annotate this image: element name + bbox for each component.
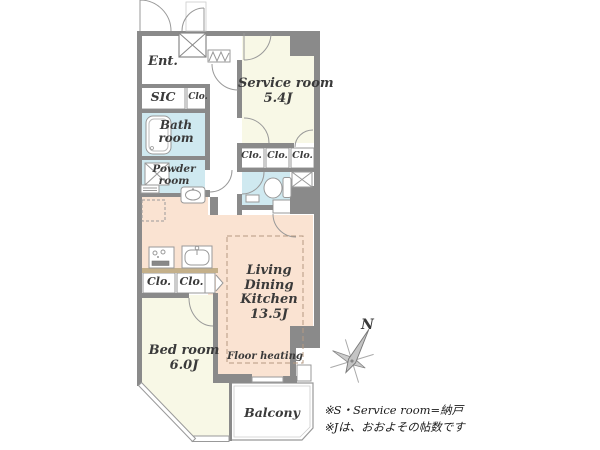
stove-icon (149, 247, 174, 268)
ldk-balcony-window (252, 377, 283, 382)
service-room-label: Service room 5.4J (238, 77, 318, 106)
compass-north-label: N (361, 318, 374, 334)
service-room-size: 5.4J (238, 92, 318, 107)
balcony-label: Balcony (238, 406, 306, 420)
note-jo-size: ※Jは、おおよその帖数です (324, 419, 465, 435)
service-room-name: Service room (238, 77, 318, 92)
entrance-door-arc-2 (182, 8, 204, 31)
kitchen-closet-1-label: Clo. (143, 276, 175, 288)
entrance-porch-outline (186, 2, 206, 31)
powder-sink-icon (181, 187, 205, 203)
entrance-closet-label: Clo. (186, 92, 210, 102)
ldk-name: Living Dining Kitchen (225, 264, 313, 308)
powder-room-label: Powder room (144, 164, 204, 188)
floor-heating-label: Floor heating (227, 351, 303, 362)
bedroom-name: Bed room (145, 344, 223, 359)
ldk-corner-storage (297, 365, 311, 381)
pipe-space-icon-2 (292, 172, 312, 187)
closet-3-label: Clo. (290, 151, 315, 162)
note-service-room: ※S・Service room=納戸 (324, 402, 463, 418)
accordion-door-icon (208, 50, 230, 62)
kitchen-closet-2-label: Clo. (176, 276, 207, 288)
pipe-space-icon (179, 33, 206, 57)
compass-icon (325, 319, 383, 383)
ldk-size: 13.5J (225, 308, 313, 323)
bathroom-label: Bath room (150, 119, 202, 146)
entrance-label: Ent. (143, 55, 183, 70)
entrance-door-arc (140, 0, 171, 31)
sic-label: SIC (141, 90, 185, 104)
bedroom-floor-ext (213, 383, 229, 438)
kitchen-sink-icon (182, 246, 212, 268)
bedroom-bottom-window (192, 436, 229, 442)
kitchen-counter-strip (142, 268, 218, 273)
bedroom-size: 6.0J (145, 359, 223, 374)
ldk-label: Living Dining Kitchen 13.5J (225, 264, 313, 322)
closet-2-label: Clo. (265, 151, 290, 162)
bedroom-label: Bed room 6.0J (145, 344, 223, 373)
floor-plan: Ent. SIC Clo. Bath room Powder room Serv… (0, 0, 600, 450)
hall-door-arc (212, 64, 238, 90)
powder-room-door-arc (210, 170, 232, 192)
floor-plan-drawing (0, 0, 600, 450)
closet-1-label: Clo. (239, 151, 264, 162)
